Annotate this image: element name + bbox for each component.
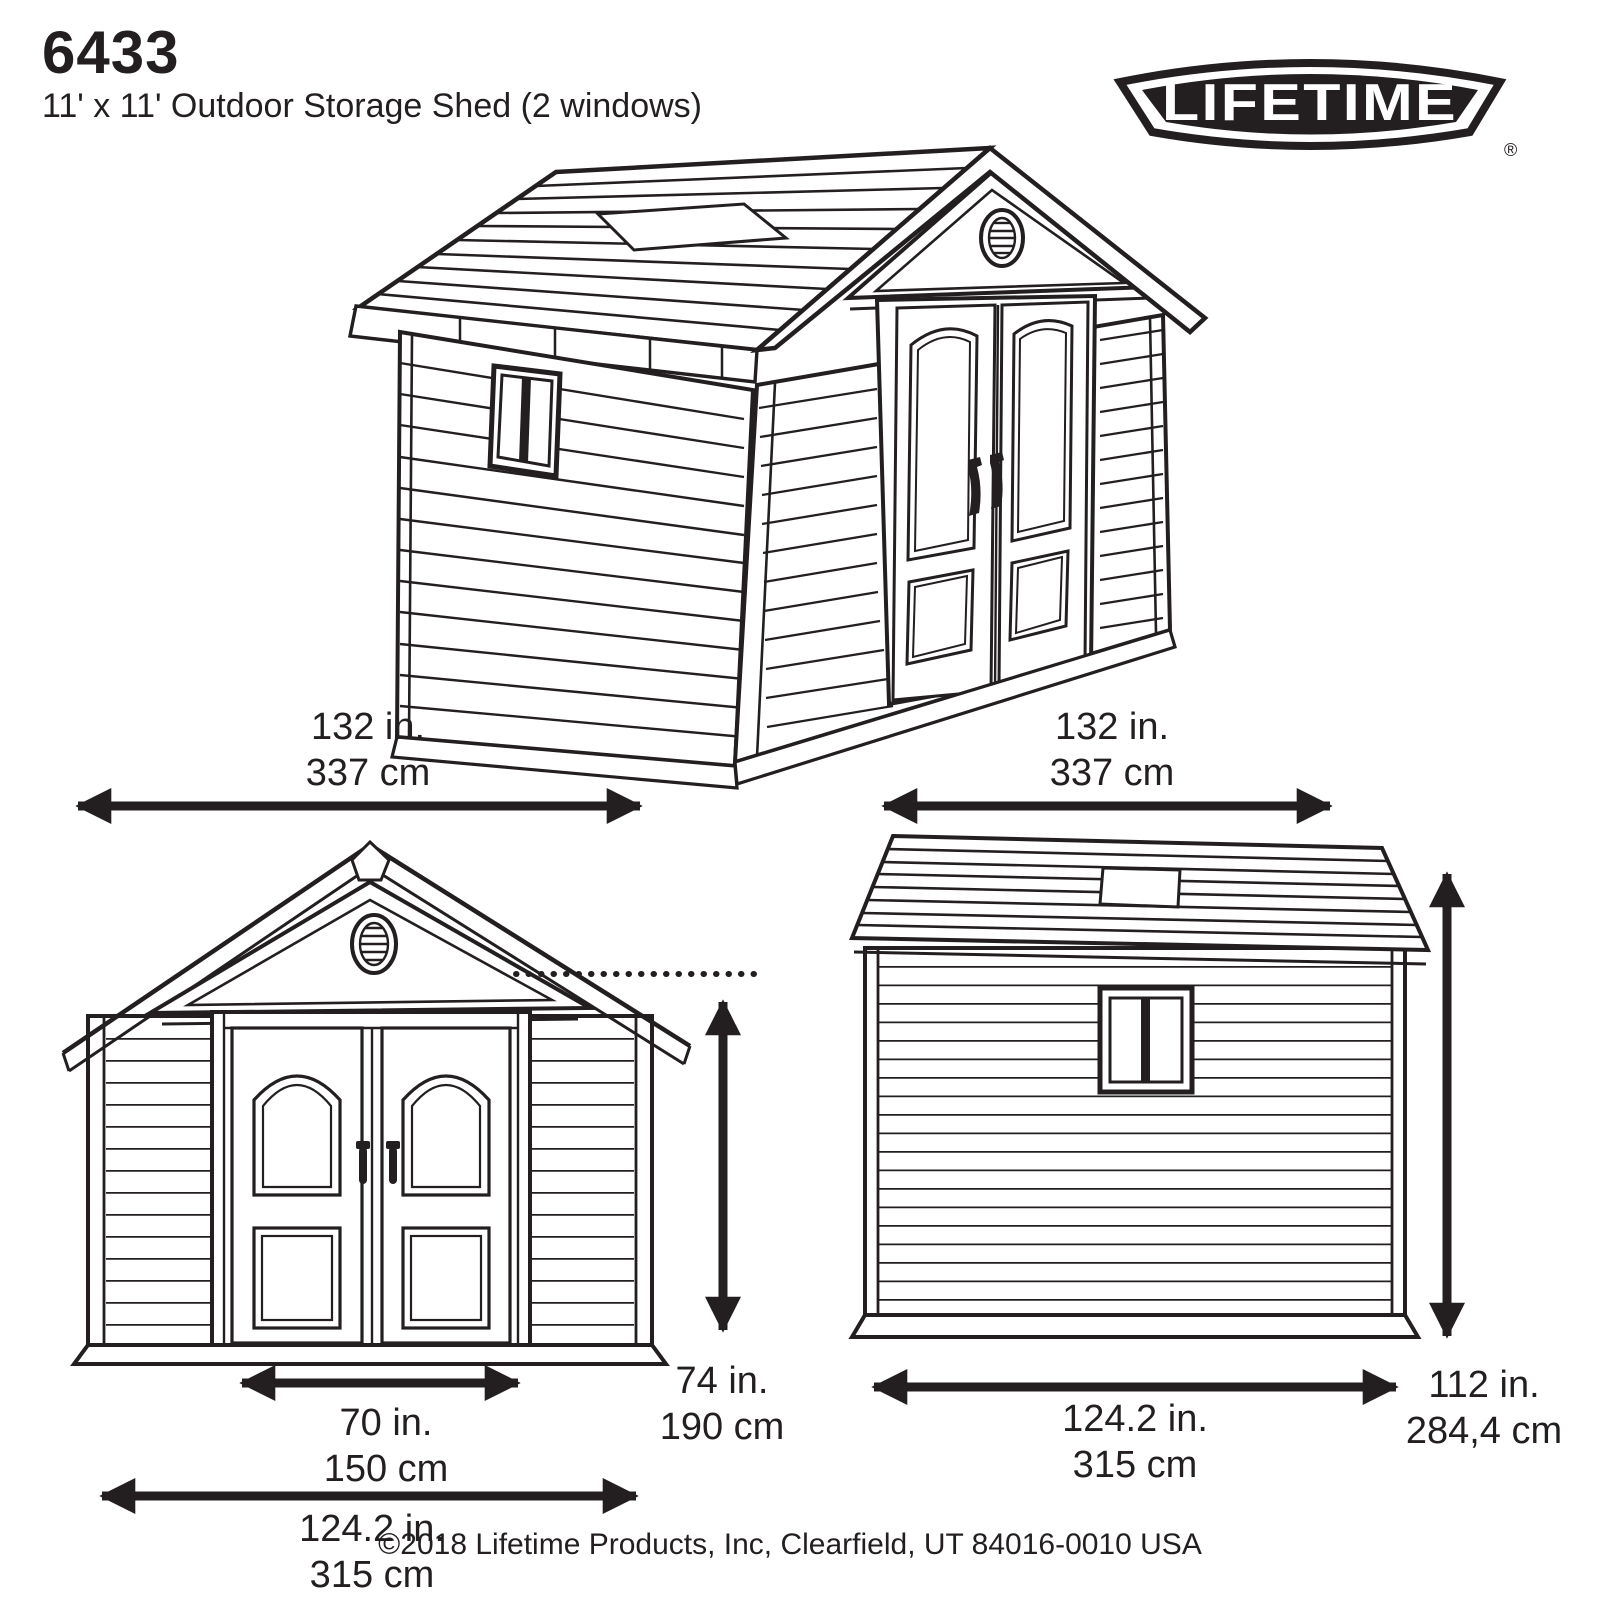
side-view-drawing — [852, 836, 1428, 1337]
overall-height-cm: 284,4 cm — [1406, 1408, 1562, 1454]
front-base — [74, 1345, 666, 1364]
front-width-cm: 337 cm — [306, 750, 431, 796]
side-roof — [852, 836, 1428, 964]
diagram-page: LIFETIME ® 6433 11' x 11' Outdoor Storag… — [0, 0, 1600, 1600]
side-skylight — [1100, 868, 1180, 907]
lifetime-logo-wordmark: LIFETIME — [1162, 74, 1458, 132]
registered-trademark-icon: ® — [1504, 140, 1517, 160]
front-view-drawing — [63, 842, 764, 1364]
title-block: 6433 11' x 11' Outdoor Storage Shed (2 w… — [42, 22, 702, 126]
wall-height-cm: 190 cm — [660, 1404, 785, 1450]
side-base-depth-cm: 315 cm — [1062, 1442, 1208, 1488]
side-width-label: 132 in. 337 cm — [1050, 704, 1175, 796]
side-window — [1100, 988, 1192, 1092]
front-gable-vent — [352, 915, 396, 973]
overall-height-label: 112 in. 284,4 cm — [1406, 1362, 1562, 1454]
side-width-cm: 337 cm — [1050, 750, 1175, 796]
front-width-label: 132 in. 337 cm — [306, 704, 431, 796]
perspective-doors — [877, 296, 1095, 704]
lifetime-logo: LIFETIME ® — [1100, 30, 1520, 170]
door-width-inches: 70 in. — [324, 1400, 449, 1446]
copyright-line: ©2018 Lifetime Products, Inc, Clearfield… — [378, 1528, 1202, 1562]
side-width-inches: 132 in. — [1050, 704, 1175, 750]
wall-height-inches: 74 in. — [660, 1358, 785, 1404]
overall-height-inches: 112 in. — [1406, 1362, 1562, 1408]
side-base-depth-label: 124.2 in. 315 cm — [1062, 1396, 1208, 1488]
front-doors — [212, 1012, 530, 1345]
door-width-cm: 150 cm — [324, 1446, 449, 1492]
door-width-label: 70 in. 150 cm — [324, 1400, 449, 1492]
perspective-side-window — [490, 366, 560, 476]
product-subtitle: 11' x 11' Outdoor Storage Shed (2 window… — [42, 86, 702, 126]
front-ridge-cap — [352, 842, 389, 880]
front-siding-right — [530, 1016, 634, 1345]
model-number: 6433 — [42, 22, 702, 84]
perspective-view-drawing — [350, 148, 1205, 788]
perspective-side-wall — [392, 332, 753, 788]
side-base-depth-inches: 124.2 in. — [1062, 1396, 1208, 1442]
side-base — [852, 1315, 1418, 1337]
front-width-inches: 132 in. — [306, 704, 431, 750]
perspective-gable-vent — [981, 210, 1023, 266]
shed-dimension-drawings — [0, 0, 1600, 1600]
front-siding-left — [106, 1016, 212, 1345]
front-gable — [150, 882, 590, 1024]
wall-height-label: 74 in. 190 cm — [660, 1358, 785, 1450]
